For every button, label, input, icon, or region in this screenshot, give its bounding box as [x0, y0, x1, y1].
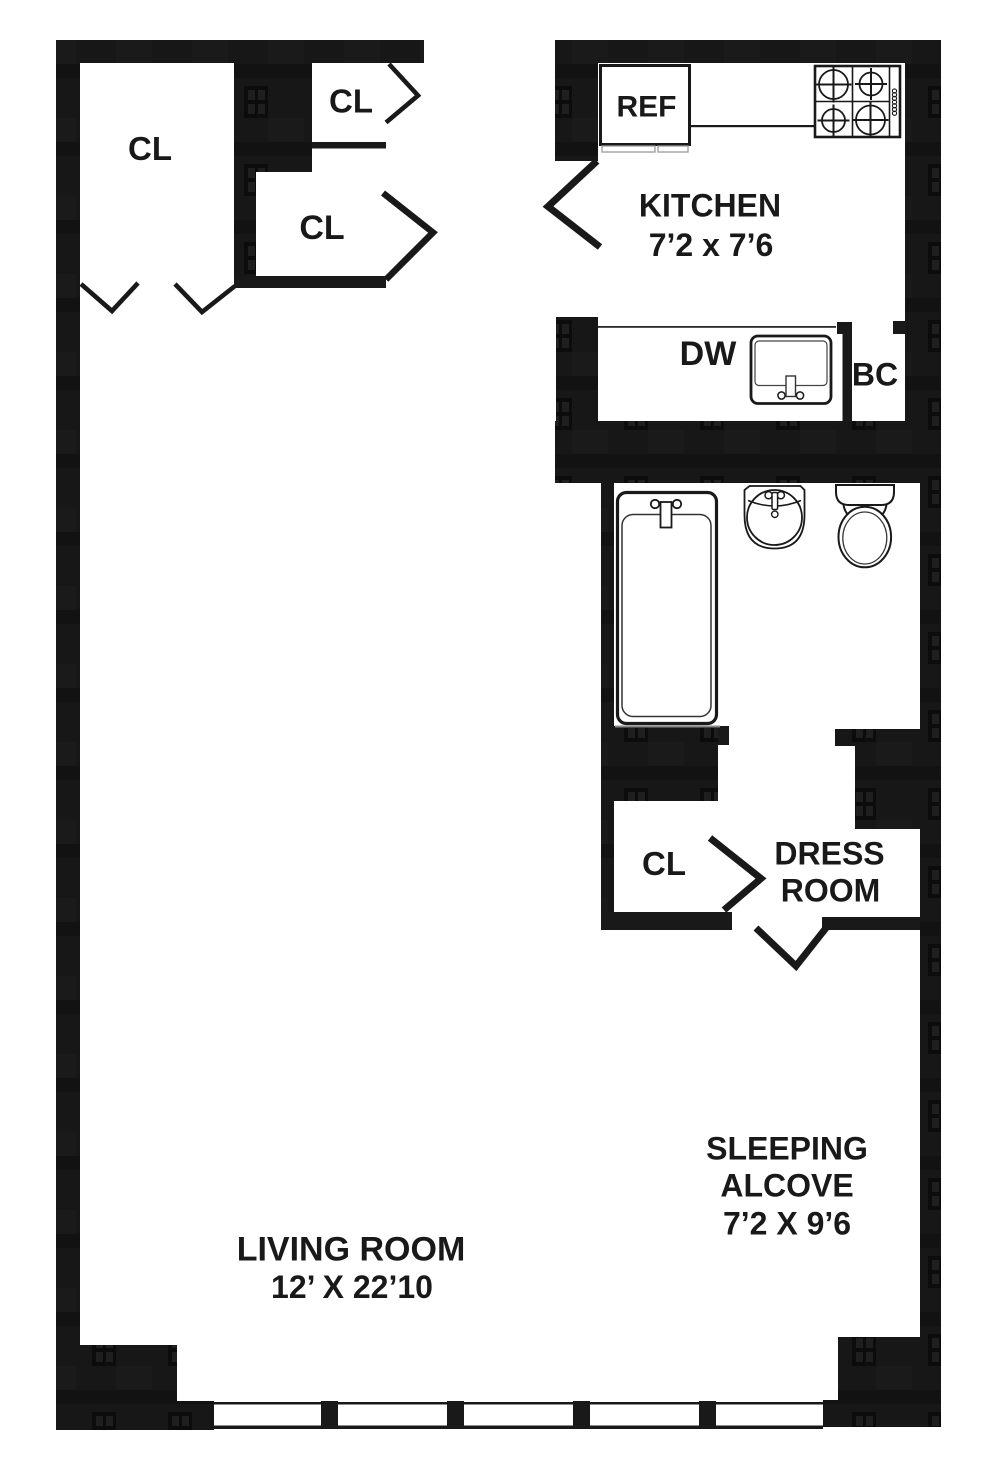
- svg-text:CL: CL: [642, 845, 686, 882]
- svg-text:ALCOVE: ALCOVE: [720, 1168, 853, 1204]
- svg-text:SLEEPING: SLEEPING: [706, 1131, 868, 1167]
- svg-text:BC: BC: [852, 357, 898, 393]
- svg-text:CL: CL: [128, 130, 172, 167]
- svg-text:7’2 x 7’6: 7’2 x 7’6: [649, 227, 774, 263]
- svg-text:CL: CL: [329, 83, 373, 120]
- svg-text:DRESS: DRESS: [774, 836, 884, 872]
- svg-text:7’2 X 9’6: 7’2 X 9’6: [723, 1206, 851, 1242]
- svg-text:REF: REF: [617, 91, 677, 124]
- svg-text:ROOM: ROOM: [781, 873, 881, 909]
- svg-text:KITCHEN: KITCHEN: [639, 188, 781, 224]
- svg-text:CL: CL: [299, 209, 344, 247]
- svg-text:DW: DW: [680, 335, 738, 373]
- svg-text:12’ X 22’10: 12’ X 22’10: [271, 1269, 433, 1305]
- svg-text:LIVING ROOM: LIVING ROOM: [237, 1231, 466, 1269]
